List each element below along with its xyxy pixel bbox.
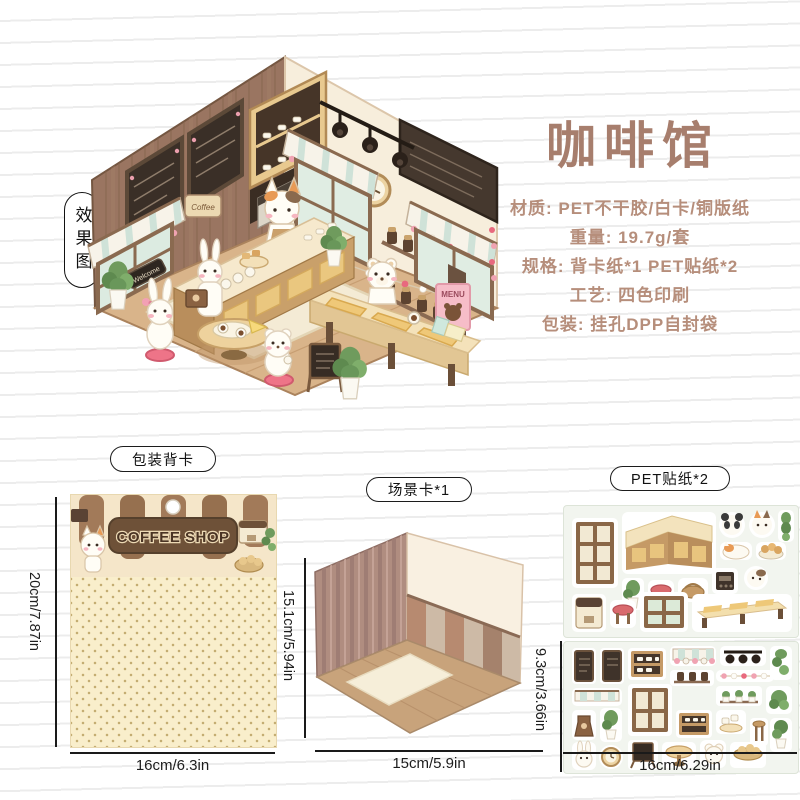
sticker-sheet-1: [563, 505, 799, 638]
sticker: [676, 710, 712, 738]
product-title: 咖啡馆: [500, 106, 766, 178]
back-card-banner: COFFEE SHOP: [71, 495, 276, 577]
back-card-height-dim: 20cm/7.87in: [26, 572, 42, 682]
sticker: [749, 510, 775, 538]
sticker: [640, 592, 688, 632]
sticker: [628, 648, 666, 680]
scene-card-width-dim: 15cm/5.9in: [315, 755, 543, 772]
svg-text:MENU: MENU: [441, 290, 465, 299]
round-table: [198, 319, 270, 365]
sticker-width-dim: 16cm/6.29in: [563, 757, 797, 774]
sticker: [770, 718, 792, 752]
back-card-height-line: [55, 497, 57, 747]
sticker: [692, 594, 792, 632]
sticker: [572, 518, 618, 588]
product-specs: 材质: PET不干胶/白卡/铜版纸 重量: 19.7g/套 规格: 背卡纸*1 …: [468, 194, 792, 339]
back-card-width-dim: 16cm/6.3in: [70, 757, 275, 774]
spec-package: 包装: 挂孔DPP自封袋: [468, 310, 792, 339]
sticker: [712, 568, 738, 594]
sticker: [600, 708, 622, 742]
sticker: [670, 670, 714, 686]
sticker: [622, 512, 716, 574]
sticker: [744, 566, 768, 590]
sticker: [572, 594, 606, 632]
sticker: [572, 710, 596, 740]
scene-card-height-line: [304, 558, 306, 738]
sticker: [628, 684, 672, 736]
spec-material: 材质: PET不干胶/白卡/铜版纸: [468, 194, 792, 223]
sticker: [716, 710, 746, 734]
sticker-height-line: [560, 641, 562, 772]
sticker-label-pill: PET贴纸*2: [610, 466, 730, 491]
sticker: [610, 600, 636, 628]
sticker: [716, 670, 774, 682]
sticker: [720, 646, 766, 666]
sticker: [756, 542, 786, 560]
banner-cat: [81, 526, 105, 572]
coffee-shop-logo: COFFEE SHOP: [116, 529, 229, 546]
scene-card: [312, 530, 544, 742]
svg-text:Coffee: Coffee: [191, 203, 215, 212]
sticker: [670, 646, 716, 666]
scene-card-width-line: [315, 750, 543, 752]
sticker: [766, 686, 792, 714]
sticker: [716, 686, 762, 706]
spec-format: 规格: 背卡纸*1 PET贴纸*2: [468, 252, 792, 281]
sticker-label: PET贴纸*2: [631, 468, 709, 489]
sticker-sheet-2: [563, 641, 799, 774]
back-card-label: 包装背卡: [132, 449, 194, 470]
sticker: [720, 541, 752, 560]
sticker: [719, 512, 745, 538]
scene-card-label-pill: 场景卡*1: [366, 477, 472, 502]
tv-icon: [71, 509, 88, 522]
bear-customer: [367, 259, 397, 305]
sticker-height-dim: 9.3cm/3.66in: [532, 648, 548, 763]
sticker: [750, 718, 768, 746]
sticker-width-line: [563, 752, 797, 754]
coffee-shop-illustration: Welcome Coffee: [82, 50, 506, 426]
scene-card-height-dim: 15.1cm/5.94in: [280, 590, 296, 710]
back-card: COFFEE SHOP: [70, 494, 277, 748]
back-card-label-pill: 包装背卡: [110, 446, 216, 472]
back-card-width-line: [70, 752, 275, 754]
bear-front: [265, 329, 293, 386]
sticker: [600, 648, 624, 684]
scene-card-label: 场景卡*1: [388, 479, 450, 500]
sticker: [572, 648, 596, 684]
coffee-sign: Coffee: [185, 195, 221, 217]
spec-craft: 工艺: 四色印刷: [468, 281, 792, 310]
sticker: [572, 688, 622, 706]
sticker: [778, 510, 794, 542]
hang-hole: [166, 500, 180, 514]
spec-weight: 重量: 19.7g/套: [468, 223, 792, 252]
